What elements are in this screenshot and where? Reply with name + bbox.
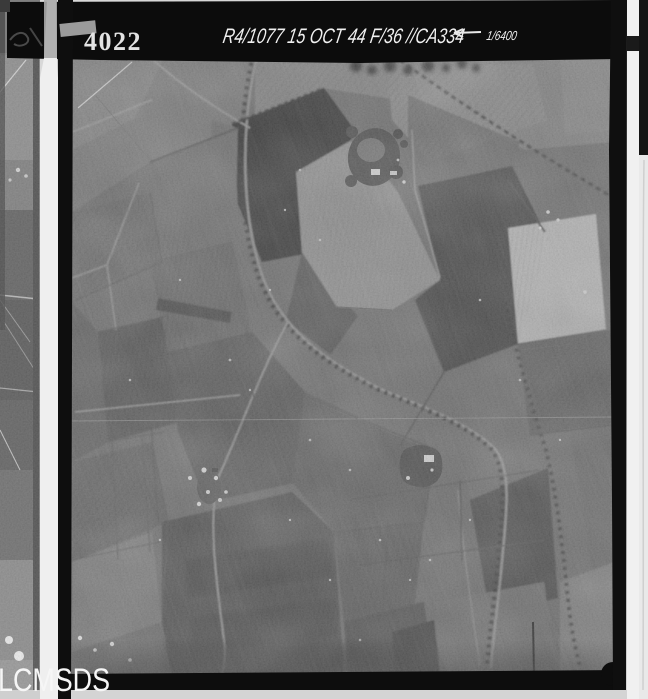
svg-text:4022: 4022	[84, 27, 142, 56]
svg-text:1/6400: 1/6400	[485, 29, 518, 43]
svg-text:R4/1077 15 OCT 44 F/36 //CA334: R4/1077 15 OCT 44 F/36 //CA334	[221, 24, 466, 47]
svg-text:LCMSDS: LCMSDS	[0, 663, 110, 699]
